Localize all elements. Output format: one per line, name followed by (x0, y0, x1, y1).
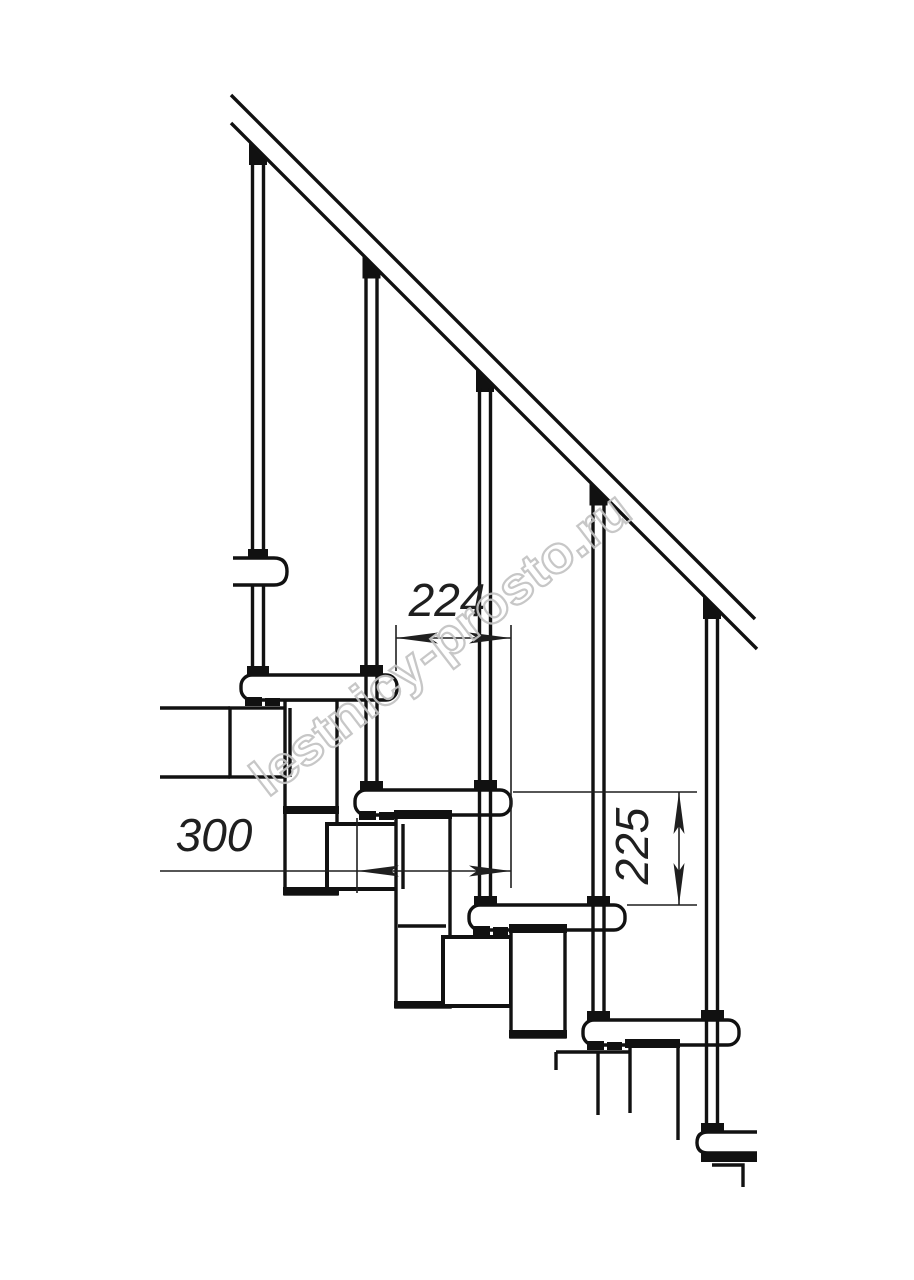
module-3-top-bar (509, 924, 567, 933)
baluster-1-foot (247, 666, 269, 676)
tread-bottom-partial (697, 1132, 757, 1153)
staircase-technical-drawing: 224 300 225 lestnicy-prosto.ru (0, 0, 914, 1280)
drawing-canvas: 224 300 225 lestnicy-prosto.ru (0, 0, 914, 1280)
baluster-3-foot (474, 896, 497, 906)
baluster-3-collar (474, 780, 497, 790)
tread-1-clamp-a (245, 697, 262, 706)
tread-2-clamp-b (379, 812, 394, 820)
dim-225-label: 225 (606, 807, 658, 885)
module-3-bottom-bar (509, 1030, 567, 1038)
module-sleeve-3 (443, 937, 511, 1006)
tread-4-clamp-b (607, 1042, 622, 1050)
module-vertical-3 (511, 928, 565, 1037)
tread-3-clamp-b (493, 927, 508, 935)
baluster-5 (703, 597, 721, 1133)
module-1-joint-bar (283, 806, 339, 814)
module-sleeve-2 (327, 824, 404, 889)
tread-top-partial (233, 558, 287, 585)
handrail-top-line (231, 95, 755, 619)
dim-300-label: 300 (176, 809, 253, 861)
baluster-2-foot (360, 781, 383, 791)
baluster-4-foot (587, 1011, 610, 1021)
baluster-1-collar-top-tread (248, 549, 268, 559)
tread-2-clamp-a (359, 811, 376, 820)
tread-5-clamp-bar (701, 1152, 757, 1162)
baluster-1 (249, 143, 267, 675)
module-4-top-bar (625, 1039, 680, 1048)
tread-4-clamp-a (587, 1041, 604, 1050)
bottom-cut-step (712, 1165, 743, 1187)
watermark-text: lestnicy-prosto.ru (240, 480, 642, 807)
baluster-4-collar (587, 896, 610, 906)
tread-1-clamp-b (265, 698, 280, 706)
module-2-top-bar (394, 810, 452, 819)
baluster-5-foot (701, 1123, 724, 1133)
tread-3-clamp-a (473, 926, 490, 935)
baluster-5-collar (701, 1010, 724, 1020)
